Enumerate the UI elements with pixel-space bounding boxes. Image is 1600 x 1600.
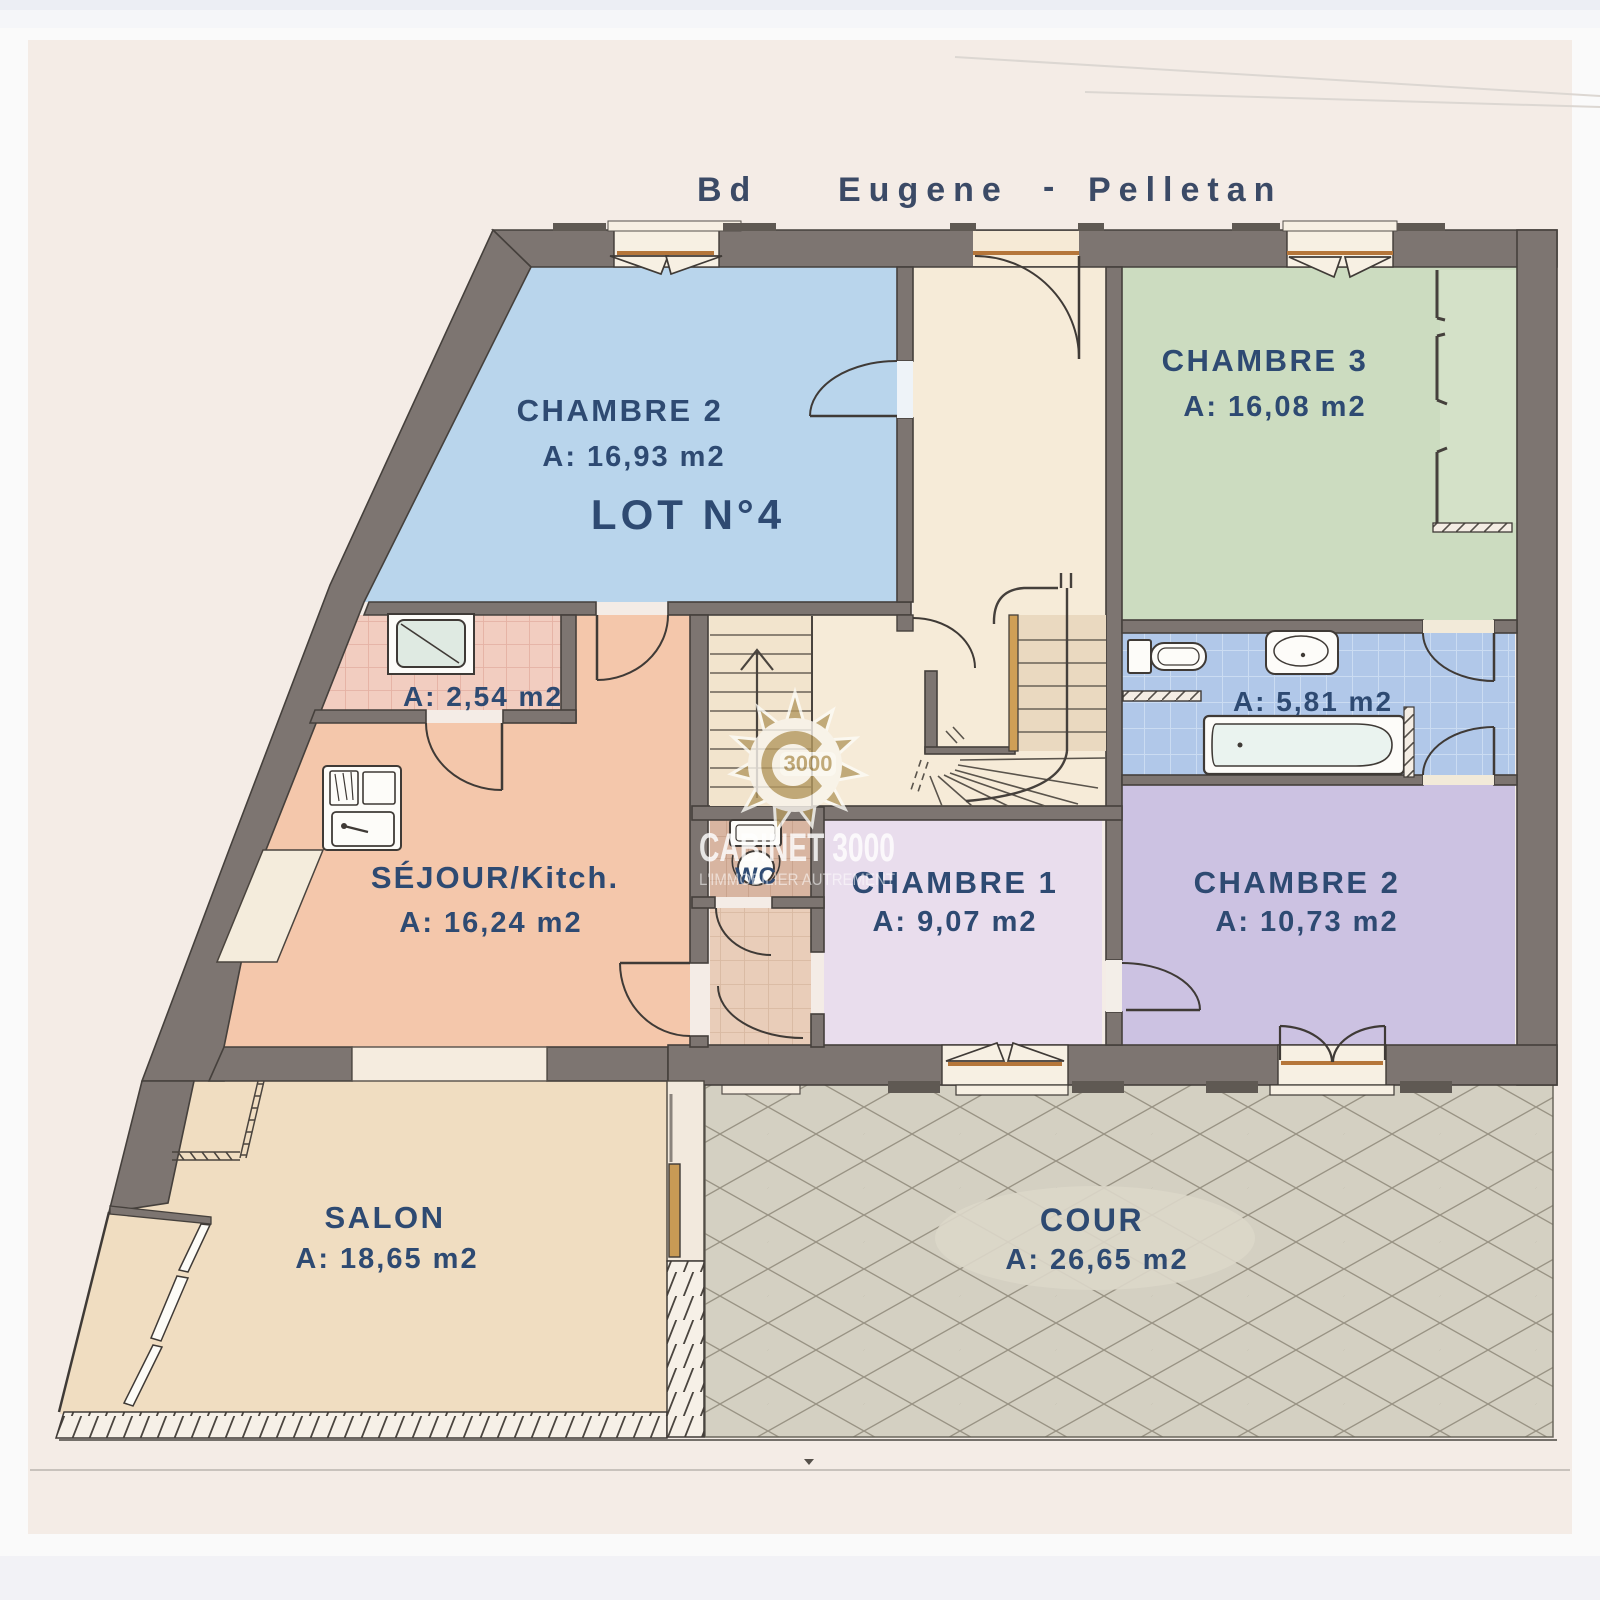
- svg-text:Bd: Bd: [697, 171, 758, 209]
- svg-text:A: 5,81 m2: A: 5,81 m2: [1233, 686, 1393, 717]
- svg-text:A: 9,07 m2: A: 9,07 m2: [872, 906, 1037, 938]
- svg-text:SALON: SALON: [325, 1200, 446, 1235]
- svg-text:Eugene: Eugene: [838, 171, 1009, 209]
- svg-text:A: 10,73 m2: A: 10,73 m2: [1215, 906, 1398, 938]
- svg-text:CHAMBRE 3: CHAMBRE 3: [1162, 343, 1369, 378]
- svg-text:CHAMBRE 2: CHAMBRE 2: [1194, 865, 1401, 900]
- svg-text:A: 26,65 m2: A: 26,65 m2: [1005, 1244, 1188, 1276]
- svg-text:A: 18,65 m2: A: 18,65 m2: [295, 1243, 478, 1275]
- svg-text:COUR: COUR: [1040, 1202, 1144, 1238]
- svg-text:Pelletan: Pelletan: [1088, 171, 1282, 209]
- svg-text:CHAMBRE 2: CHAMBRE 2: [517, 393, 724, 428]
- svg-text:CABINET 3000: CABINET 3000: [699, 826, 895, 870]
- svg-text:SÉJOUR/Kitch.: SÉJOUR/Kitch.: [371, 860, 619, 895]
- svg-text:L'IMMOBILIER AUTREMENT: L'IMMOBILIER AUTREMENT: [699, 870, 895, 889]
- svg-text:LOT N°4: LOT N°4: [591, 491, 785, 538]
- svg-text:A: 16,08 m2: A: 16,08 m2: [1183, 391, 1366, 423]
- svg-text:A: 16,93 m2: A: 16,93 m2: [542, 441, 725, 473]
- svg-text:3000: 3000: [784, 751, 833, 776]
- svg-text:-: -: [1043, 168, 1062, 206]
- svg-text:A: 16,24 m2: A: 16,24 m2: [399, 907, 582, 939]
- svg-text:A: 2,54 m2: A: 2,54 m2: [403, 681, 563, 712]
